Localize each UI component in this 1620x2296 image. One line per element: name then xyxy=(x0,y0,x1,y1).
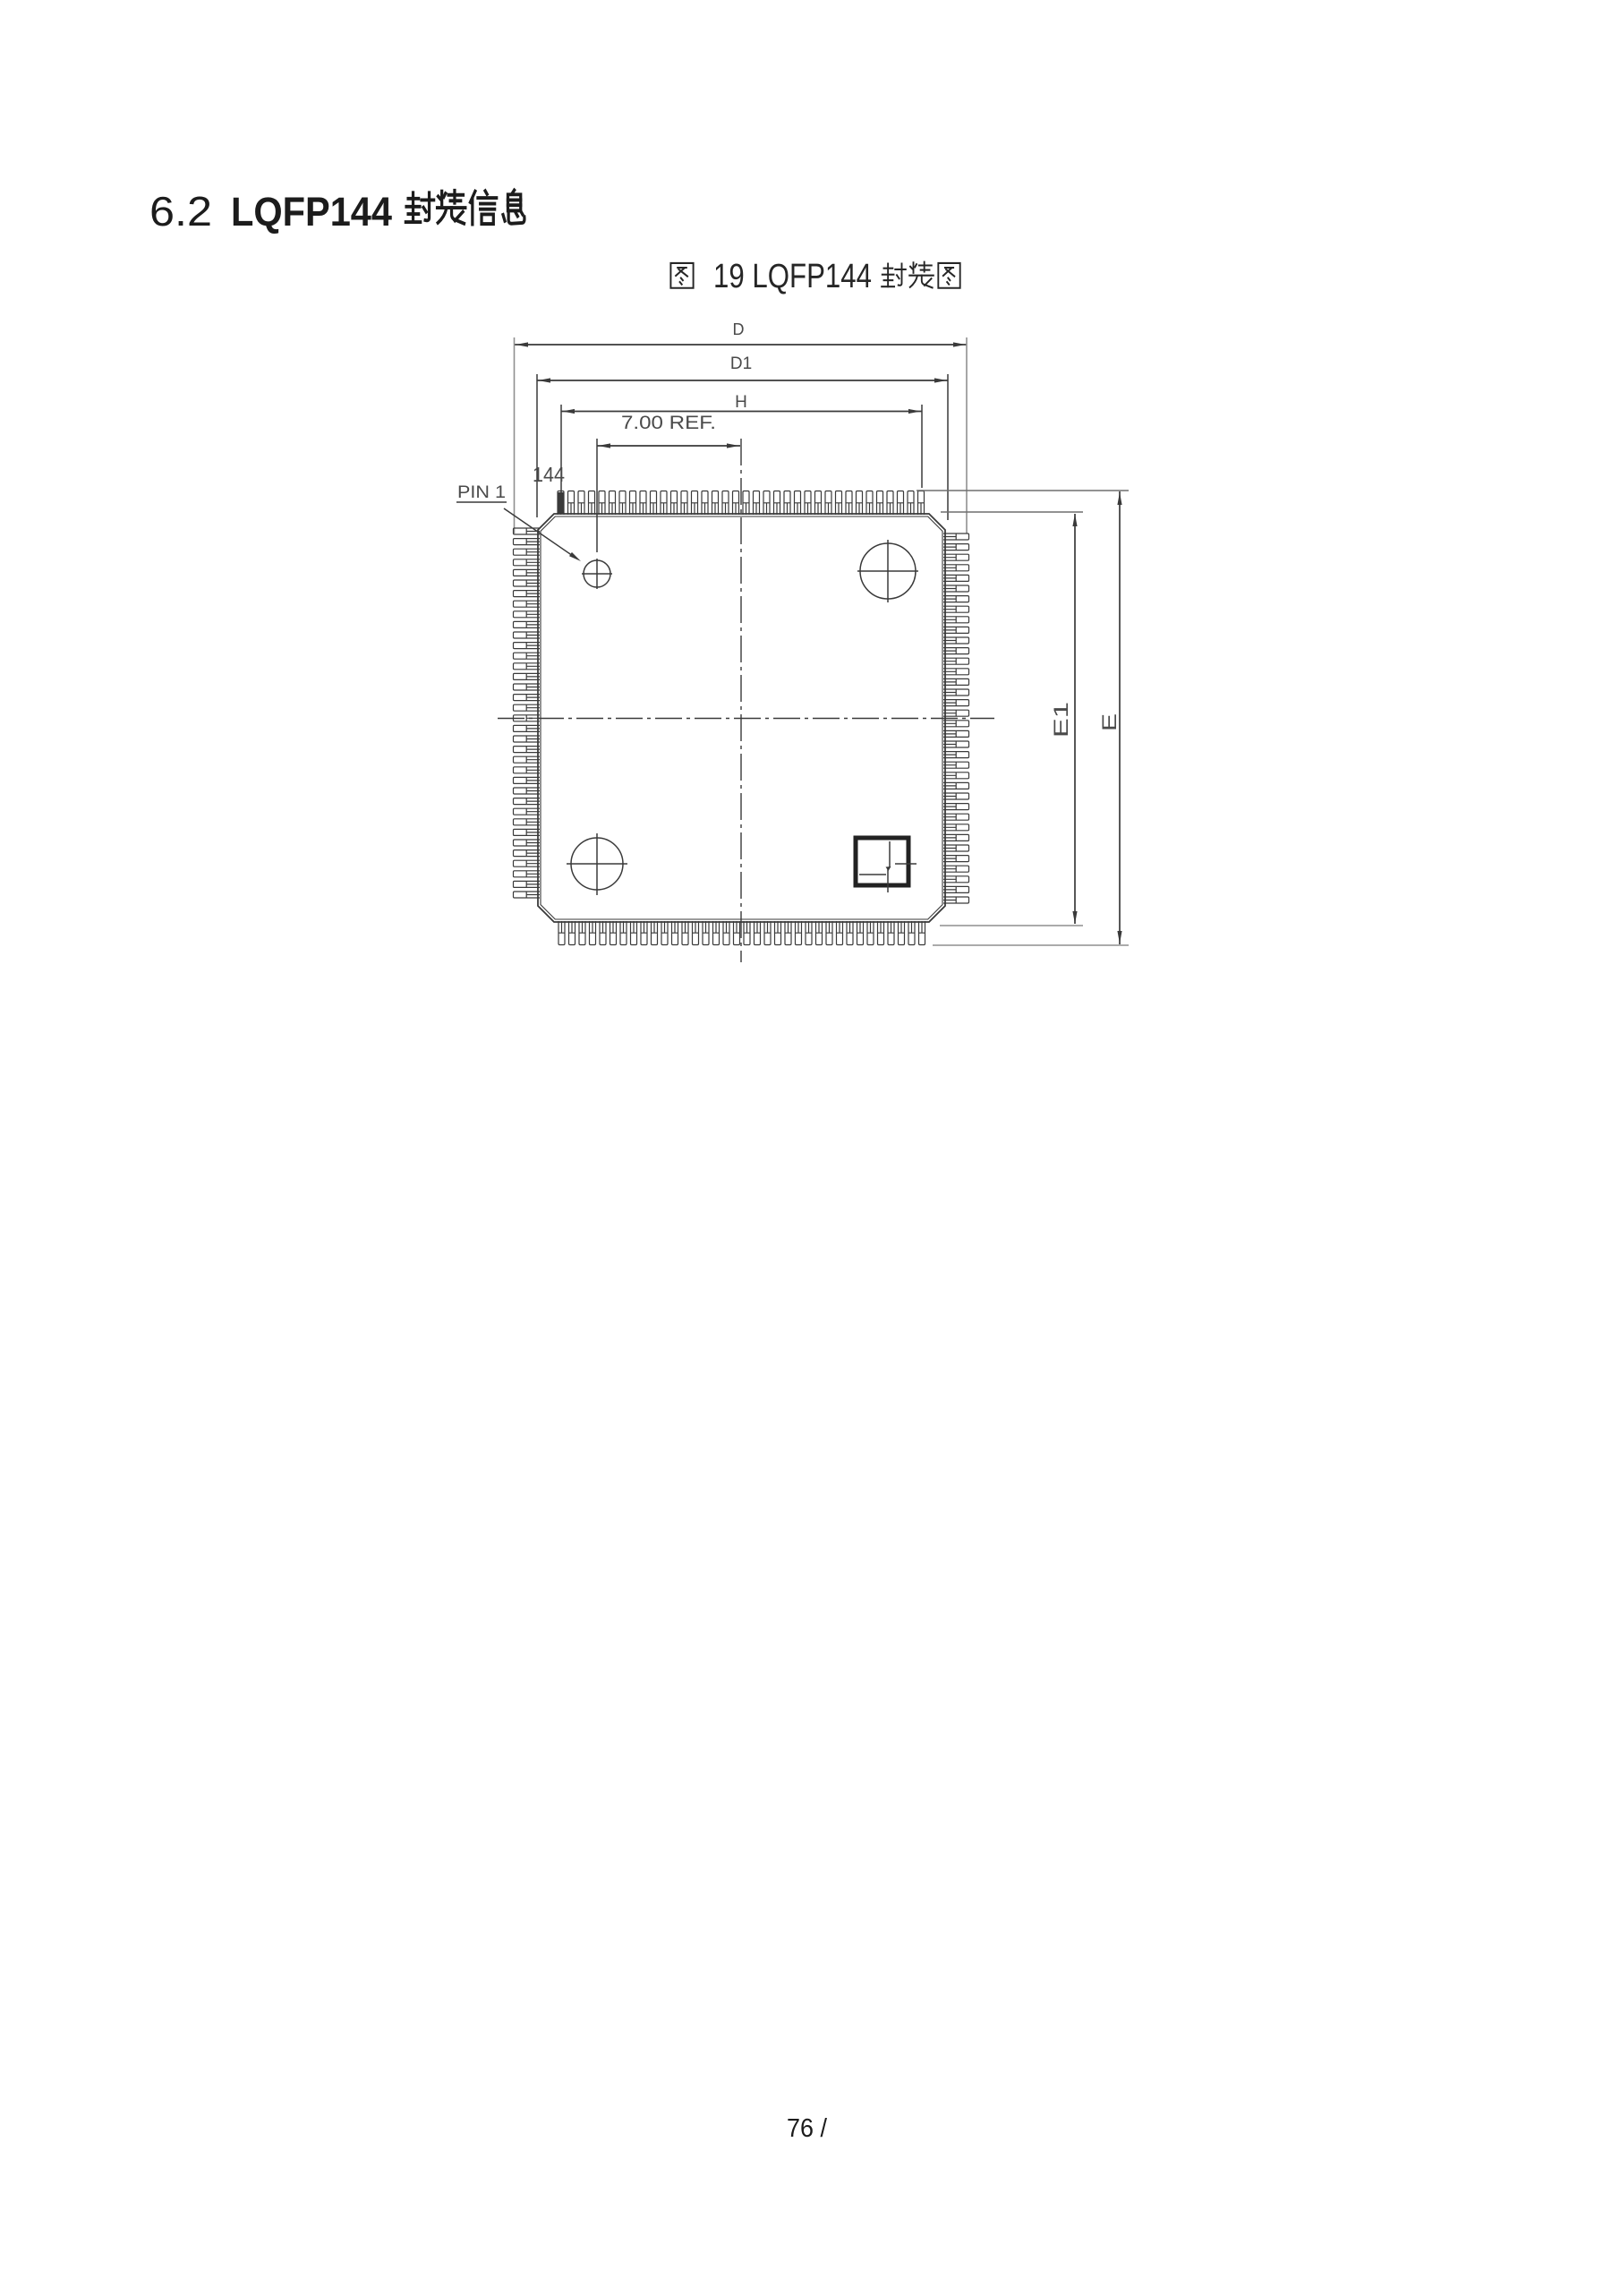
svg-text:PIN 1: PIN 1 xyxy=(457,483,506,502)
svg-text:D: D xyxy=(733,320,745,338)
svg-text:H: H xyxy=(735,393,747,412)
svg-text:D1: D1 xyxy=(730,354,752,373)
svg-text:E1: E1 xyxy=(1050,702,1072,738)
svg-text:E: E xyxy=(1098,713,1121,731)
svg-text:76 /: 76 / xyxy=(787,2114,828,2143)
svg-text:6.2: 6.2 xyxy=(149,188,212,235)
svg-text:LQFP144: LQFP144 xyxy=(231,189,392,235)
svg-text:19 LQFP144: 19 LQFP144 xyxy=(713,258,872,295)
svg-text:7.00 REF.: 7.00 REF. xyxy=(621,413,716,433)
svg-text:144: 144 xyxy=(533,463,565,486)
